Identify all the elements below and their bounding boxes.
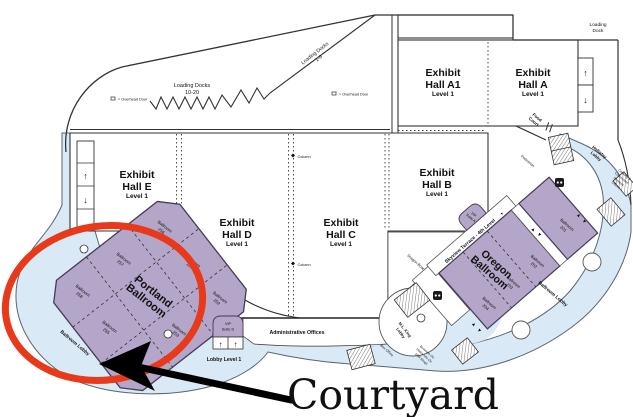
double-wall <box>392 15 398 133</box>
svg-text:Column: Column <box>298 263 311 267</box>
restroom-icon <box>555 178 564 187</box>
svg-text:Level 1: Level 1 <box>432 91 454 98</box>
elevator-up-icon: ↑ <box>219 340 223 349</box>
elevator-up-icon: ↑ <box>583 68 588 78</box>
overhead-door-legend: = Overhead Door <box>332 92 369 97</box>
elevator-up-icon: ↑ <box>83 171 88 181</box>
svg-text:Loading Docks: Loading Docks <box>174 83 211 89</box>
vip-suite-d: VIP Suite D ↑ ↑ <box>213 316 243 349</box>
svg-text:Level 1: Level 1 <box>226 241 248 248</box>
svg-text:Exhibit: Exhibit <box>515 67 551 79</box>
svg-text:Ballroom Lobby: Ballroom Lobby <box>537 280 569 308</box>
floor-plan-svg: Column Column ↑ ↓ ↑ ↓ <box>0 0 633 417</box>
svg-text:Level 1: Level 1 <box>426 191 448 198</box>
loading-dock-label: Loading Dock <box>589 22 606 34</box>
svg-text:Loading Docks: Loading Docks <box>300 41 330 66</box>
svg-text:Pedestrian: Pedestrian <box>520 154 535 168</box>
lobby-level-label: Lobby Level 1 <box>207 357 242 363</box>
restroom-icon <box>433 291 442 300</box>
svg-text:Suite D: Suite D <box>222 328 235 332</box>
food-court-wall <box>516 126 546 140</box>
svg-text:Hall B: Hall B <box>422 179 452 191</box>
svg-text:Exhibit: Exhibit <box>419 167 455 179</box>
door-icon <box>164 330 172 338</box>
svg-text:Level 1: Level 1 <box>126 193 148 200</box>
elevator-down-icon: ↓ <box>583 95 588 105</box>
loading-area-room <box>398 15 513 38</box>
svg-text:10-20: 10-20 <box>185 90 199 96</box>
convention-center-floor-plan: Column Column ↑ ↓ ↑ ↓ <box>0 0 633 417</box>
elevator-bank-left: ↑ ↓ <box>77 141 94 231</box>
admin-offices-label: Administrative Offices <box>269 330 324 336</box>
svg-text:Hall C: Hall C <box>326 229 356 241</box>
svg-text:Hall E: Hall E <box>122 181 151 193</box>
info-icon <box>417 314 425 322</box>
door-icon <box>80 245 88 253</box>
svg-text:Hall A: Hall A <box>518 79 548 91</box>
svg-text:Column: Column <box>298 155 311 159</box>
elevator-bank-hall-a: ↑ ↓ <box>578 58 593 112</box>
elevator-down-icon: ↓ <box>83 195 88 205</box>
outer-wall-topleft <box>66 15 375 152</box>
svg-text:VIP: VIP <box>225 322 232 326</box>
courtyard-label: Courtyard <box>287 371 499 417</box>
svg-text:Level 1: Level 1 <box>330 241 352 248</box>
svg-text:Loading: Loading <box>589 22 606 28</box>
svg-text:Exhibit: Exhibit <box>425 67 461 79</box>
svg-text:= Overhead Door: = Overhead Door <box>118 98 148 102</box>
pedestrian-label: Pedestrian <box>520 154 535 168</box>
lobby-circle-1 <box>583 253 601 271</box>
ballroom-lobby-label-right: Ballroom Lobby <box>537 280 569 308</box>
svg-text:Dock: Dock <box>593 28 605 34</box>
svg-text:= Overhead Door: = Overhead Door <box>339 93 369 97</box>
svg-text:Exhibit: Exhibit <box>323 217 359 229</box>
svg-text:Hall D: Hall D <box>222 229 252 241</box>
loading-docks-10-20-label: Loading Docks 10-20 <box>174 83 211 96</box>
svg-text:Level 1: Level 1 <box>522 91 544 98</box>
svg-text:Exhibit: Exhibit <box>219 217 255 229</box>
lobby-circle-2 <box>512 321 530 339</box>
svg-text:Exhibit: Exhibit <box>119 169 155 181</box>
elevator-up-icon: ↑ <box>234 340 238 349</box>
overhead-door-legend: = Overhead Door <box>111 97 148 102</box>
svg-text:Hall A1: Hall A1 <box>425 79 460 91</box>
